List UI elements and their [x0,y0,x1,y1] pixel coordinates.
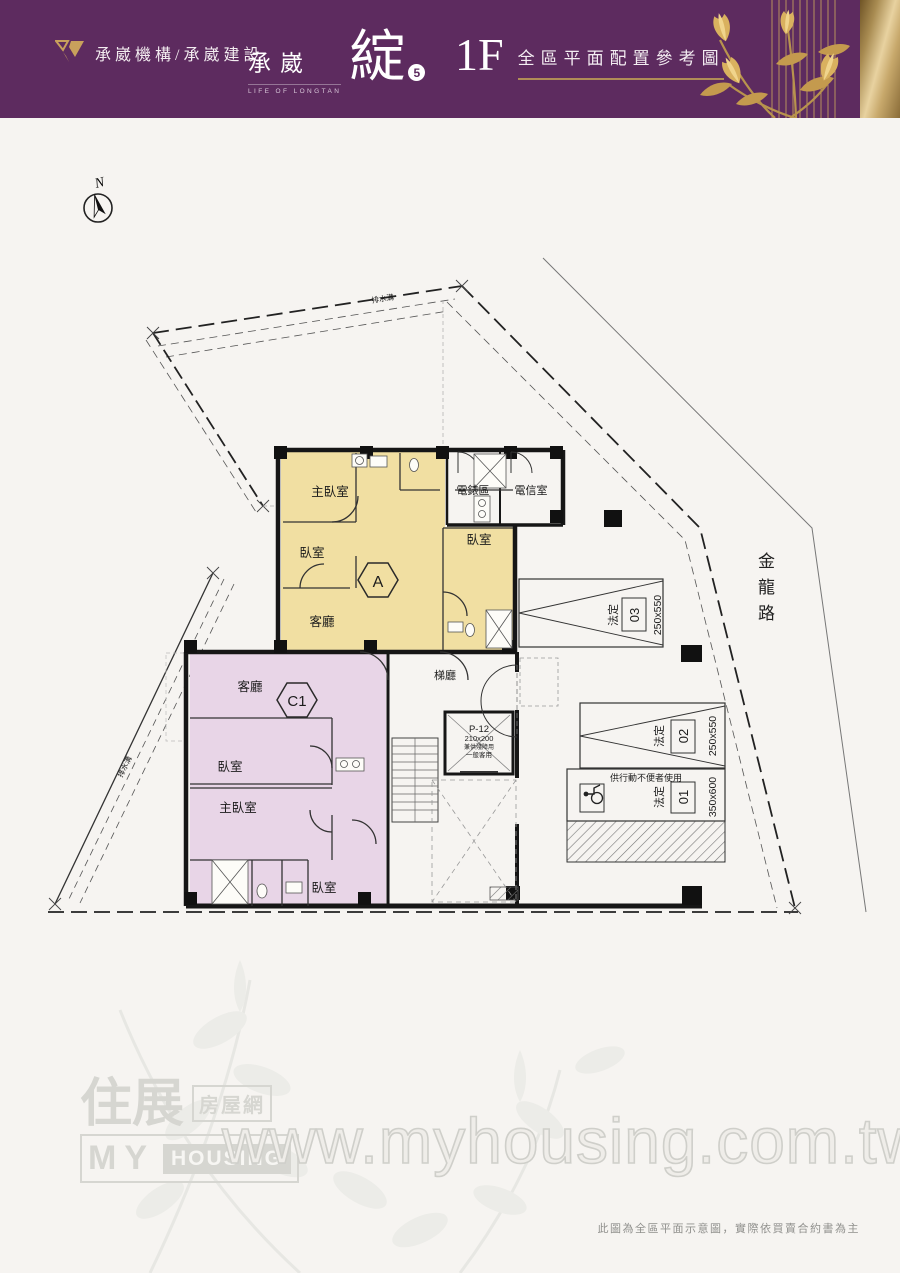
parking-02-size: 250x550 [707,716,719,756]
brand-big-char: 綻 [349,28,405,88]
floor-label: 1F [455,30,504,80]
unit-c1-bed2-label: 臥室 [311,880,336,895]
developer-logo: 承崴機構/承崴建設 [55,40,263,66]
company-name: 承崴機構/承崴建設 [95,41,263,65]
unit-c1-bed-label: 臥室 [217,759,242,774]
parking-02-number: 02 [676,729,691,743]
drain-label-top: 排水溝 [371,292,395,305]
unit-c1-tag: C1 [287,693,306,710]
tulip-decoration-icon [680,0,870,118]
unit-a-bed-label: 臥室 [299,545,324,560]
parking-02-type: 法定 [652,725,666,747]
unit-c1-living-label: 客廳 [237,679,263,694]
elevator-note2: 一般客用 [466,750,492,759]
elevator-note1: 兼供殘障用 [464,743,494,751]
flyer-page: 承崴機構/承崴建設 承崴 LIFE OF LONGTAN 綻 5 1F 全區平面… [0,0,900,1273]
watermark-url: www.myhousing.com.tw [222,1104,900,1178]
parking-03-size: 250x550 [652,595,664,635]
meter-room-label: 電錶區 [457,484,490,497]
unit-a-bed2-label: 臥室 [466,532,491,547]
telecom-room-label: 電信室 [515,483,548,497]
drain-label-left: 排水溝 [115,754,134,779]
hall-label: 梯廳 [434,668,456,682]
unit-c1-master-label: 主臥室 [219,800,257,815]
parking-01-size: 350x600 [707,777,719,817]
wheelchair-icon [580,784,604,812]
phase-badge: 5 [408,64,425,81]
unit-a-master-label: 主臥室 [311,484,349,499]
unit-a-tag: A [373,574,384,591]
parking-03-number: 03 [627,608,642,622]
unit-a-living-label: 客廳 [309,614,335,629]
brand-logo: 承崴 LIFE OF LONGTAN 綻 5 [248,28,425,95]
elevator-size: 210x200 [465,734,494,743]
disclaimer-text: 此圖為全區平面示意圖，實際依買賣合約書為主 [598,1220,861,1236]
parking-01-type: 法定 [652,786,666,808]
parking-01-number: 01 [676,790,691,804]
myhousing-cn: 住展 [80,1080,184,1130]
road-name-label: 金龍路 [752,552,777,630]
brand-name: 承崴 [248,44,341,78]
myhousing-my: MY [88,1139,155,1178]
parking-03-type: 法定 [606,604,620,626]
brand-tagline: LIFE OF LONGTAN [248,84,341,95]
core-area [392,658,558,902]
header-bar: 承崴機構/承崴建設 承崴 LIFE OF LONGTAN 綻 5 1F 全區平面… [0,0,900,118]
parking-01-note: 供行動不便者使用 [610,772,682,783]
developer-logo-icon [55,40,85,66]
